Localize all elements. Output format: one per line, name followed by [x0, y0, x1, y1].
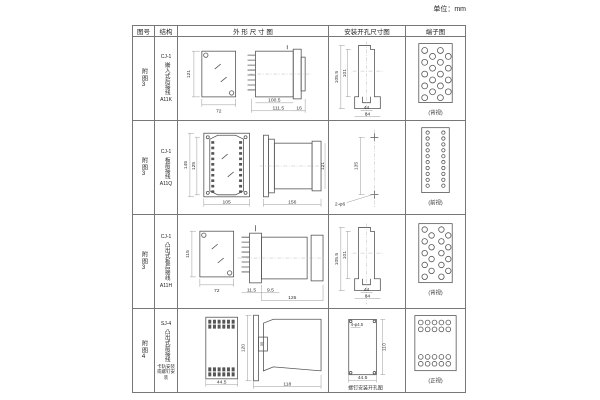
row1-dim-l1: 100.5 — [268, 97, 281, 103]
row3-install-b2: 84 — [365, 293, 371, 299]
row2-fig-cell: 附图3 — [133, 121, 155, 215]
row3-code: A11H — [160, 283, 172, 289]
row3-dim-b1: 11.5 — [247, 287, 257, 293]
row2-install-hole-label: 2-φ6 — [335, 201, 346, 207]
row2-install-v: 135 — [354, 161, 360, 169]
row2-type: 板前接线 — [163, 157, 169, 179]
row1-outline-drawing: 121 72 100.5 111.5 16 — [178, 37, 328, 121]
row1-install-b2: 84 — [365, 111, 371, 117]
row4-structure-cell: SJ-4 凸出式前接线 卡轨安装或螺钉安装 — [155, 309, 178, 393]
row3-terminal-cell: (背视) — [406, 215, 466, 309]
row4-model: SJ-4 — [161, 321, 171, 327]
row4-terminal-view-label: (正视) — [428, 376, 443, 384]
row2-terminal-drawing: (前视) — [406, 121, 465, 215]
row1-front-view — [202, 51, 236, 97]
row2-install-cell: 135 2-φ6 — [329, 121, 406, 215]
row1-install-v2: 101 — [342, 68, 348, 76]
row3-dim-w: 72 — [214, 287, 220, 293]
manual-page: 单位：mm 图号 结构 外 形 尺 寸 图 安装开孔尺寸图 端子图 附图3 CJ… — [0, 0, 600, 400]
row4-dim-inner: 35 — [259, 341, 264, 346]
row1-terminal-cell: (背视) — [406, 37, 466, 121]
header-structure: 结构 — [155, 26, 178, 37]
row4-dim-v: 120 — [241, 343, 247, 352]
row2-dim-len: 156 — [288, 199, 297, 205]
row1-install-cell: 105.5 101 44 84 — [329, 37, 406, 121]
row3-side-view — [242, 225, 323, 283]
row2-dim-v2: 125 — [191, 161, 197, 170]
row2-outline-drawing: 145 125 105 156 121 — [178, 121, 328, 215]
row4-terminal-cell: (正视) — [406, 309, 466, 393]
row4-install-v: 110 — [382, 342, 388, 350]
row3-terminal-drawing: (背视) — [406, 215, 465, 309]
row4-dim-w: 44.5 — [217, 379, 227, 385]
row4-fig-cell: 附图4 — [133, 309, 155, 393]
row4-install-hole-label: 4-φ4.5 — [351, 321, 364, 326]
row1-fig-cell: 附图3 — [133, 37, 155, 121]
row1-outline-cell: 121 72 100.5 111.5 16 — [178, 37, 329, 121]
row4-install-cell: 4-φ4.5 110 44.5 螺钉安装开孔图 — [329, 309, 406, 393]
row2-model: CJ-1 — [161, 149, 172, 155]
row3-model: CJ-1 — [161, 234, 172, 240]
row3-front-view — [200, 231, 234, 277]
row1-install-b1: 44 — [364, 105, 370, 111]
row2-structure-cell: CJ-1 板前接线 A11Q — [155, 121, 178, 215]
row2-dim-b: 105 — [223, 199, 232, 205]
row3-type: 凸出式板后接线 — [163, 242, 169, 281]
row2-dim-v1: 145 — [183, 160, 189, 169]
row1-install-drawing: 105.5 101 44 84 — [329, 37, 405, 121]
row2-terminal-strips — [213, 141, 241, 193]
row3-structure-cell: CJ-1 凸出式板后接线 A11H — [155, 215, 178, 309]
row1-terminal-pins — [422, 47, 452, 100]
row4-install-caption: 螺钉安装开孔图 — [348, 384, 383, 391]
row2-dim-r: 121 — [320, 161, 326, 170]
row3-install-drawing: 105.5 101 44 84 — [329, 215, 405, 309]
row3-dim-h: 115 — [185, 249, 191, 257]
row2-code: A11Q — [160, 181, 172, 187]
row4-install-dim-lines — [349, 319, 386, 382]
row4-terminal-drawing: (正视) — [406, 309, 465, 393]
row2-terminal-view-label: (前视) — [428, 198, 443, 206]
row3-install-cell: 105.5 101 44 84 — [329, 215, 406, 309]
row3-outline-cell: 115 72 11.5 9.5 126 — [178, 215, 329, 309]
header-outline-dims: 外 形 尺 寸 图 — [178, 26, 329, 37]
row1-cutout-shape — [355, 45, 381, 108]
row4-dim-b: 118 — [283, 381, 291, 387]
row2-terminal-cell: (前视) — [406, 121, 466, 215]
row4-terminal-blocks — [208, 321, 235, 374]
row3-dim-b3: 126 — [288, 295, 297, 301]
row2-dim-lines — [188, 133, 325, 207]
row1-dim-r: 16 — [296, 105, 302, 111]
row4-side-view — [253, 315, 321, 381]
row2-front-view — [204, 133, 250, 197]
row4-fig-no: 附图4 — [141, 340, 147, 361]
row1-side-view — [248, 45, 306, 99]
row3-install-b1: 44 — [364, 287, 370, 293]
row3-terminal-view-label: (背视) — [428, 288, 443, 296]
row3-fig-no: 附图3 — [141, 251, 147, 272]
dimension-table: 图号 结构 外 形 尺 寸 图 安装开孔尺寸图 端子图 附图3 CJ-1 嵌入式… — [132, 25, 466, 393]
row4-mounting-note: 卡轨安装或螺钉安装 — [156, 364, 176, 380]
row4-install-drawing: 4-φ4.5 110 44.5 螺钉安装开孔图 — [329, 309, 405, 393]
row1-install-v1: 105.5 — [334, 70, 340, 83]
row4-install-b: 44.5 — [358, 375, 368, 381]
row3-outline-drawing: 115 72 11.5 9.5 126 — [178, 215, 328, 309]
row1-type: 嵌入式后接线 — [163, 62, 169, 95]
row3-fig-cell: 附图3 — [133, 215, 155, 309]
row4-hole-layout — [349, 319, 377, 374]
row3-install-v1: 105.5 — [334, 252, 340, 265]
header-terminal-diagram: 端子图 — [406, 26, 466, 37]
header-install-holes: 安装开孔尺寸图 — [329, 26, 406, 37]
row1-dim-width: 72 — [216, 108, 222, 114]
row4-type: 凸出式前接线 — [163, 329, 169, 362]
row4-outline-drawing: 44.5 120 35 118 — [178, 309, 328, 393]
row3-cutout-shape — [355, 227, 381, 290]
row1-dim-height: 121 — [186, 69, 192, 78]
unit-label: 单位：mm — [132, 4, 466, 14]
row3-dim-b2: 9.5 — [267, 287, 274, 293]
row3-dim-lines — [190, 231, 323, 301]
row4-outline-cell: 44.5 120 35 118 — [178, 309, 329, 393]
row3-terminal-pins — [422, 226, 451, 279]
row1-structure-cell: CJ-1 嵌入式后接线 A11K — [155, 37, 178, 121]
row3-install-v2: 101 — [342, 250, 348, 258]
row2-install-drawing: 135 2-φ6 — [329, 121, 405, 215]
header-fig-no: 图号 — [133, 26, 155, 37]
row1-terminal-drawing: (背视) — [406, 37, 465, 121]
row2-fig-no: 附图3 — [141, 157, 147, 178]
row2-terminal-pins — [426, 130, 445, 186]
row1-dim-l2: 111.5 — [272, 105, 284, 111]
row1-model: CJ-1 — [161, 54, 172, 60]
row2-outline-cell: 145 125 105 156 121 — [178, 121, 329, 215]
row1-terminal-view-label: (背视) — [428, 108, 443, 116]
row1-code: A11K — [160, 97, 172, 103]
row4-terminal-pins — [418, 320, 450, 366]
row1-fig-no: 附图3 — [141, 68, 147, 89]
